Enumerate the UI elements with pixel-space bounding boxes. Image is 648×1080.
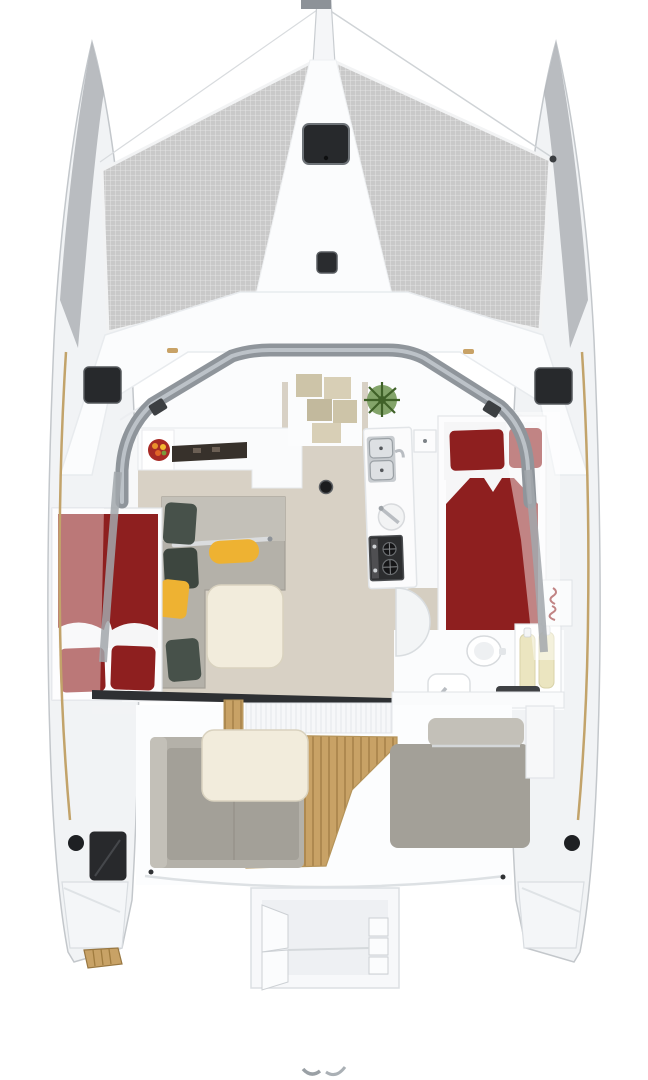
bench-seat bbox=[390, 744, 530, 848]
deck-hatch-large-latch bbox=[324, 156, 328, 160]
toilet-seat bbox=[474, 642, 494, 660]
cubby-1 bbox=[296, 374, 322, 397]
stove-knob-strip bbox=[371, 538, 379, 578]
deck-fitting-right bbox=[501, 875, 506, 880]
cubby-3 bbox=[307, 399, 332, 421]
fruit-apricot bbox=[155, 450, 161, 456]
yellow-bolster bbox=[208, 539, 259, 565]
cubby-2 bbox=[324, 377, 351, 399]
galley-floor-strip bbox=[366, 584, 398, 700]
platform-step-right-2 bbox=[369, 938, 388, 955]
wave-1 bbox=[303, 1069, 320, 1074]
deck-hatch-small bbox=[317, 252, 337, 273]
salon bbox=[158, 497, 285, 688]
porthole-starboard bbox=[564, 835, 580, 851]
wave-2 bbox=[326, 1067, 345, 1075]
swim-platform bbox=[251, 888, 399, 990]
stbd-transom-step bbox=[518, 882, 584, 948]
cubby-5 bbox=[312, 423, 341, 443]
cockpit-table bbox=[202, 730, 308, 801]
bench-backrest bbox=[428, 718, 524, 746]
fruit-orange bbox=[152, 443, 158, 449]
cockpit-sofa bbox=[150, 730, 308, 868]
charcoal-pillow-3 bbox=[165, 638, 202, 683]
porthole-port bbox=[68, 835, 84, 851]
nightstand-handle bbox=[423, 439, 427, 443]
salon-table bbox=[207, 585, 283, 668]
cockpit bbox=[68, 700, 580, 887]
helm-console bbox=[526, 706, 554, 778]
toilet-flush bbox=[499, 648, 506, 655]
bottle-1-cap bbox=[524, 628, 531, 637]
fruit-lemon bbox=[160, 444, 166, 450]
anchor-roller bbox=[301, 0, 331, 9]
stay-fitting-right bbox=[550, 156, 557, 163]
side-hatch-port bbox=[84, 367, 121, 403]
cockpit-sofa-arm bbox=[150, 737, 167, 868]
counter-inset-1 bbox=[193, 448, 201, 453]
storage-steps bbox=[288, 366, 362, 446]
platform-step-right-1 bbox=[369, 918, 388, 936]
mast-post-fitting bbox=[320, 481, 333, 494]
rail-end-cap bbox=[268, 537, 273, 542]
plant-center bbox=[378, 396, 386, 404]
fruit-plate bbox=[148, 439, 170, 461]
platform-step-right-3 bbox=[369, 957, 388, 974]
water-mark bbox=[303, 1067, 345, 1075]
floorplan-svg bbox=[0, 0, 648, 1080]
yellow-pillow bbox=[158, 579, 190, 620]
port-pillow-2 bbox=[110, 645, 156, 691]
door-grate bbox=[246, 703, 392, 733]
cubby-4 bbox=[333, 400, 357, 423]
stbd-pillow-1 bbox=[449, 429, 504, 471]
counter-inset-2 bbox=[212, 447, 220, 452]
catamaran-floorplan-render bbox=[0, 0, 648, 1080]
transom-starboard bbox=[518, 882, 584, 948]
galley-island bbox=[363, 427, 417, 589]
deck-fitting-left bbox=[149, 870, 154, 875]
fruit-lime bbox=[162, 451, 167, 456]
roof-grabrail-right bbox=[463, 349, 474, 354]
roof-grabrail-left bbox=[167, 348, 178, 353]
charcoal-pillow-1 bbox=[163, 502, 198, 545]
side-hatch-starboard bbox=[535, 368, 572, 404]
